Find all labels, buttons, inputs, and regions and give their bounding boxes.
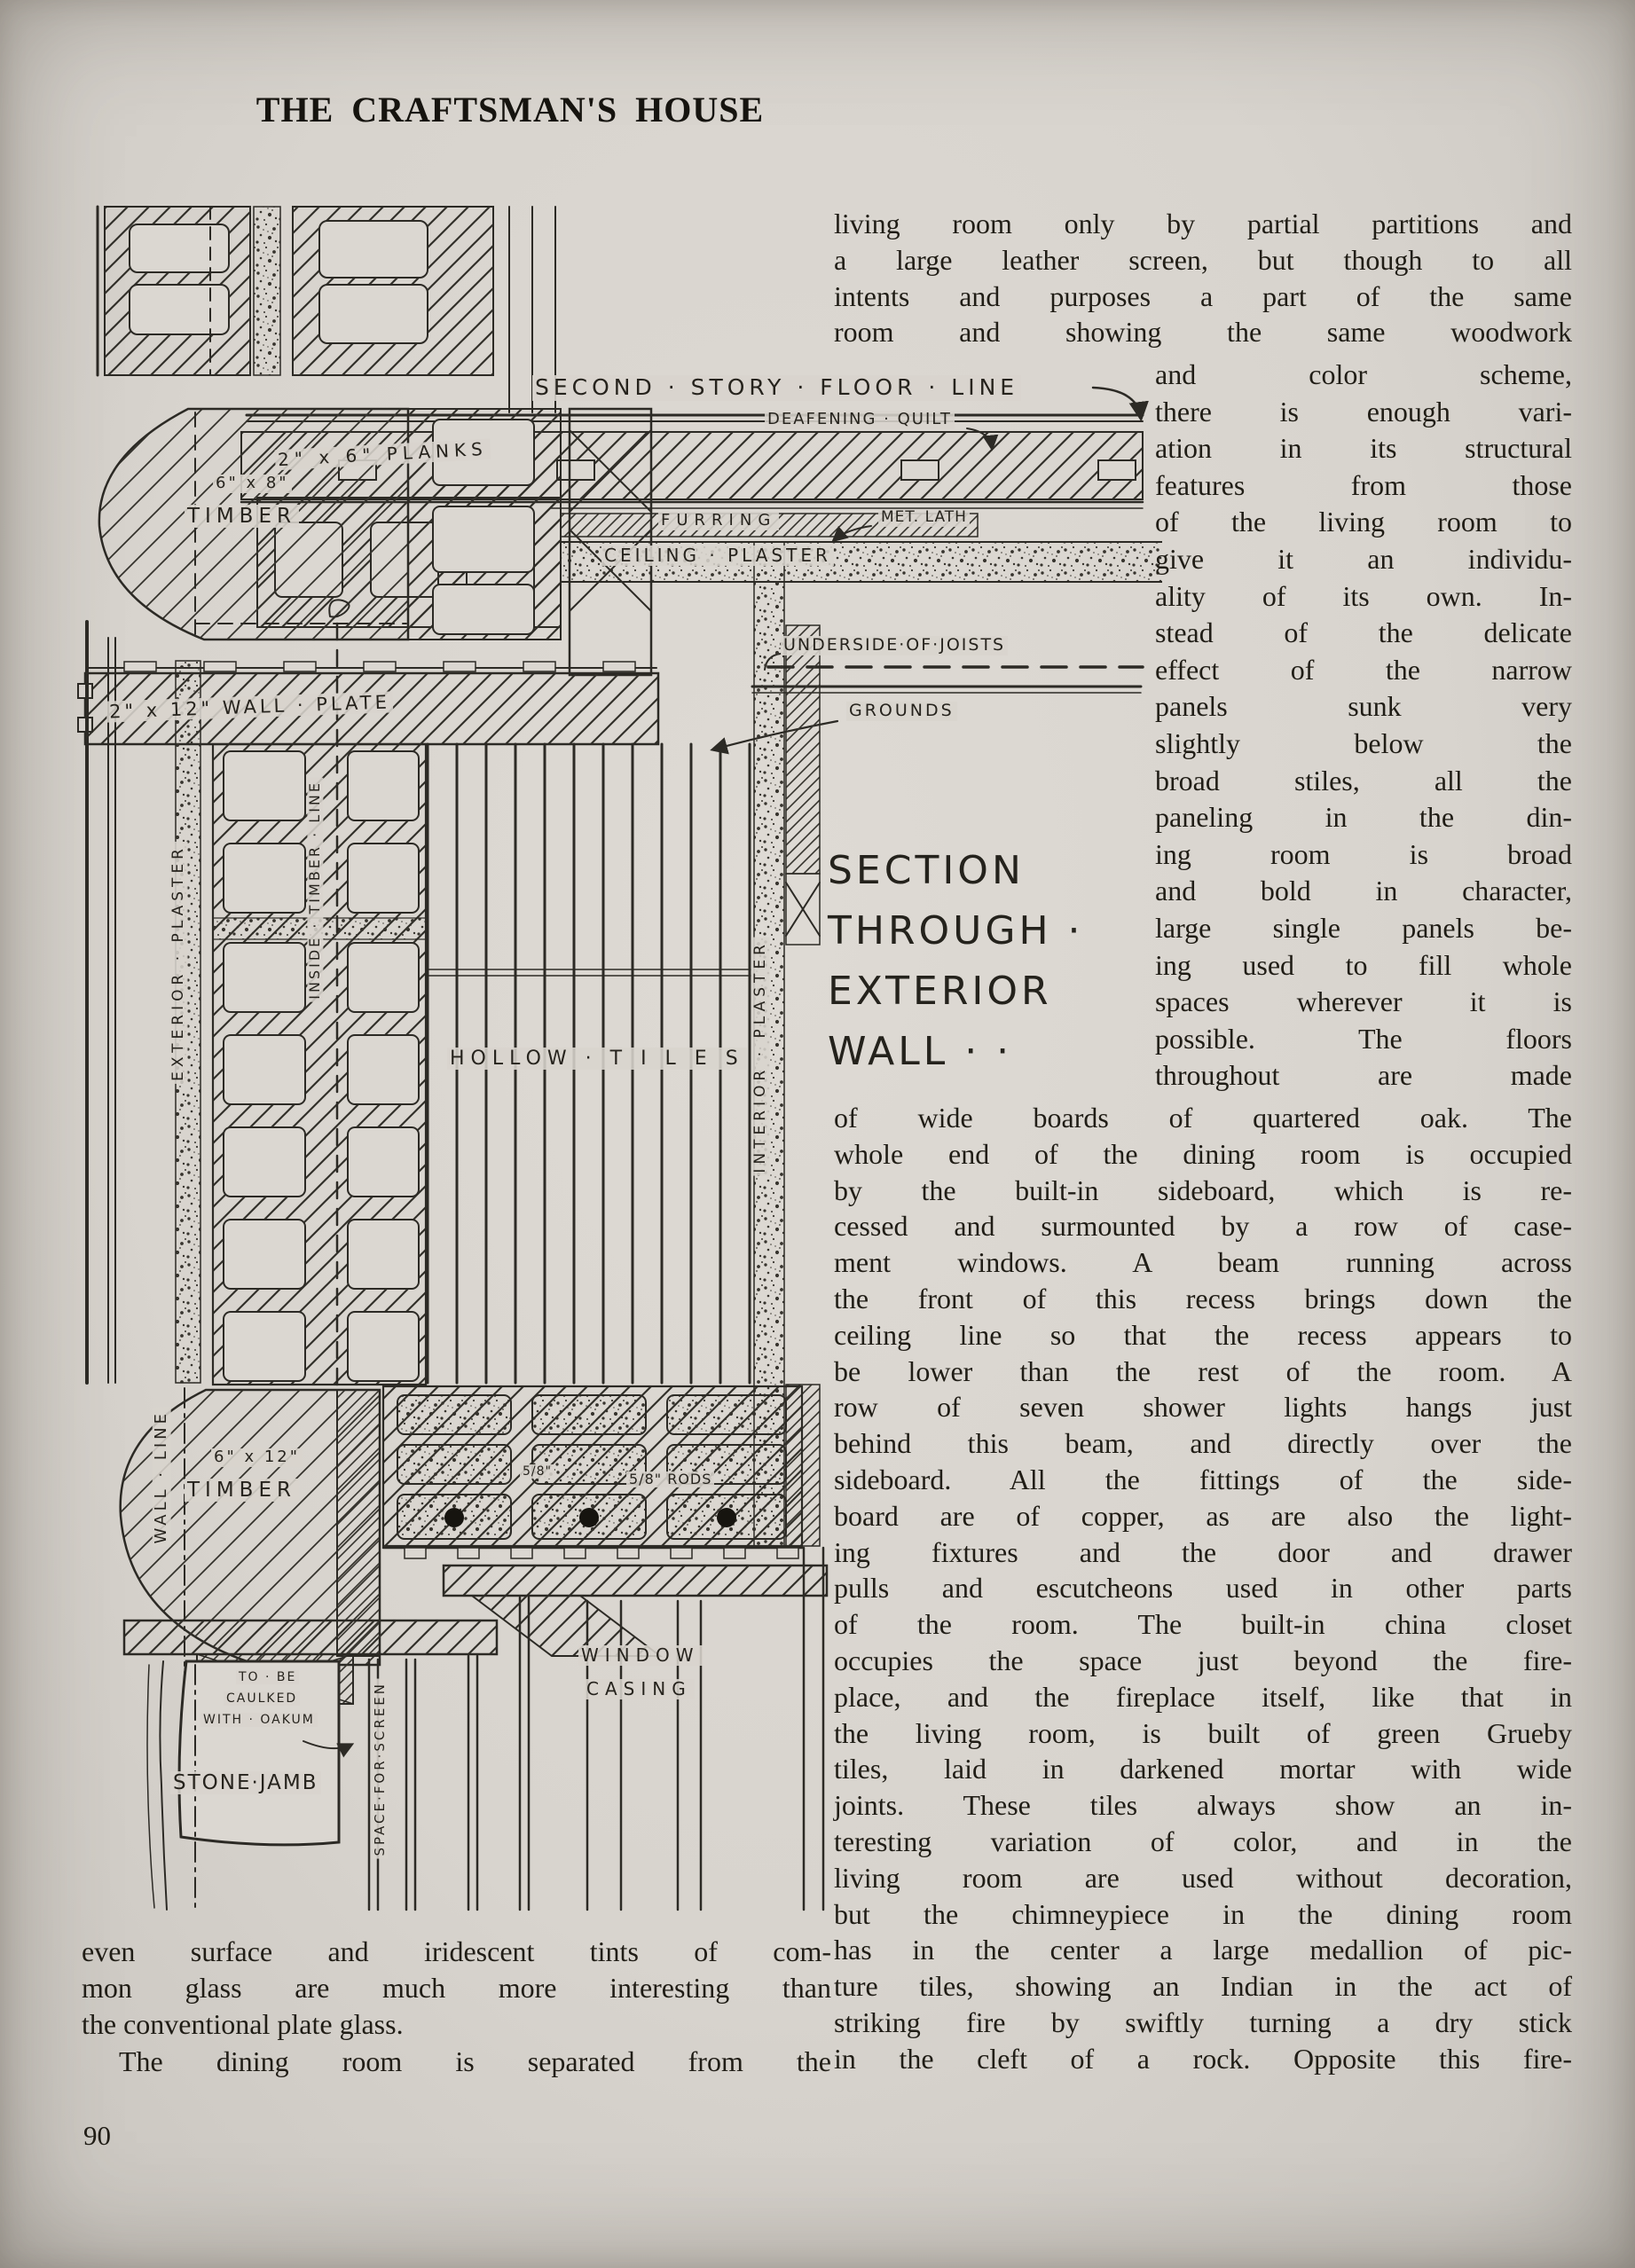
text-line: joints. These tiles always show an in- bbox=[834, 1787, 1572, 1824]
text-line: row of seven shower lights hangs just bbox=[834, 1389, 1572, 1425]
caption-line: EXTERIOR bbox=[828, 961, 1084, 1022]
text-line: intents and purposes a part of the same bbox=[834, 279, 1572, 315]
page-title: THE CRAFTSMAN'S HOUSE bbox=[0, 89, 1020, 130]
text-line: ture tiles, showing an Indian in the act… bbox=[834, 1968, 1572, 2005]
text-line: the living room, is built of green Grueb… bbox=[834, 1715, 1572, 1752]
text-line: be lower than the rest of the room. A bbox=[834, 1354, 1572, 1390]
text-line: but the chimneypiece in the dining room bbox=[834, 1896, 1572, 1933]
text-line: a large leather screen, but though to al… bbox=[834, 242, 1572, 279]
label-stone-jamb: STONE·JAMB bbox=[170, 1771, 321, 1794]
text-line: the front of this recess brings down the bbox=[834, 1281, 1572, 1317]
text-line: even surface and iridescent tints of com… bbox=[82, 1934, 831, 1970]
text-line: ceiling line so that the recess appears … bbox=[834, 1317, 1572, 1354]
text-line: living room are used without decoration, bbox=[834, 1860, 1572, 1896]
text-line: ing room is broad bbox=[1155, 836, 1572, 874]
scanned-page: THE CRAFTSMAN'S HOUSE bbox=[0, 0, 1635, 2268]
text-line: occupies the space just beyond the fire- bbox=[834, 1643, 1572, 1679]
label-caulked-line1: TO · BE bbox=[236, 1670, 299, 1684]
label-timber-6x8-size: 6" x 8" bbox=[213, 475, 292, 493]
label-caulked-line3: WITH · OAKUM bbox=[200, 1713, 318, 1727]
right-column-top: living room only by partial partitions a… bbox=[834, 206, 1572, 350]
text-line: cessed and surmounted by a row of case- bbox=[834, 1208, 1572, 1244]
caption-line: THROUGH · bbox=[828, 901, 1084, 961]
text-line: give it an individu- bbox=[1155, 541, 1572, 578]
label-window-casing-line2: CASING bbox=[584, 1679, 695, 1699]
text-line: of the living room to bbox=[1155, 504, 1572, 541]
label-interior-plaster: INTERIOR · PLASTER bbox=[752, 938, 770, 1176]
text-line: ing fixtures and the door and drawer bbox=[834, 1534, 1572, 1571]
text-line: teresting variation of color, and in the bbox=[834, 1824, 1572, 1860]
text-line: striking fire by swiftly turning a dry s… bbox=[834, 2005, 1572, 2041]
right-column-wide: of wide boards of quartered oak. Thewhol… bbox=[834, 1100, 1572, 2077]
right-column-narrow: and color scheme,there is enough vari-at… bbox=[1155, 357, 1572, 1095]
text-line: and bold in character, bbox=[1155, 873, 1572, 910]
text-line: and color scheme, bbox=[1155, 357, 1572, 394]
text-line: has in the center a large medallion of p… bbox=[834, 1932, 1572, 1968]
text-line: spaces wherever it is bbox=[1155, 984, 1572, 1021]
text-line: mon glass are much more interesting than bbox=[82, 1970, 831, 2006]
text-line: room and showing the same woodwork bbox=[834, 314, 1572, 350]
label-window-casing-line1: WINDOW bbox=[578, 1645, 703, 1666]
text-line: The dining room is separated from the bbox=[82, 2044, 831, 2080]
text-line: ment windows. A beam running across bbox=[834, 1244, 1572, 1281]
text-line: paneling in the din- bbox=[1155, 799, 1572, 836]
label-rod-size: 5/8" bbox=[520, 1464, 554, 1479]
text-line: there is enough vari- bbox=[1155, 394, 1572, 431]
label-hollow-tiles: HOLLOW · T I L E S bbox=[447, 1048, 747, 1070]
label-timber-6x12: TIMBER bbox=[185, 1479, 299, 1502]
caption-line: WALL · · bbox=[828, 1022, 1084, 1082]
text-line: features from those bbox=[1155, 467, 1572, 505]
text-line: panels sunk very bbox=[1155, 688, 1572, 726]
text-line: stead of the delicate bbox=[1155, 615, 1572, 652]
text-line: ation in its structural bbox=[1155, 430, 1572, 467]
page-number: 90 bbox=[83, 2120, 111, 2152]
label-exterior-plaster: EXTERIOR · PLASTER bbox=[170, 842, 188, 1084]
label-wall-line: WALL · LINE bbox=[153, 1408, 171, 1547]
text-line: broad stiles, all the bbox=[1155, 763, 1572, 800]
label-met-lath: MET. LATH bbox=[878, 509, 970, 527]
text-line: ing used to fill whole bbox=[1155, 947, 1572, 985]
text-line: pulls and escutcheons used in other part… bbox=[834, 1570, 1572, 1606]
label-inside-timber-line: INSIDE · TIMBER · LINE bbox=[307, 778, 323, 1002]
label-space-for-screen: SPACE·FOR·SCREEN bbox=[373, 1679, 388, 1859]
bottom-left-column: even surface and iridescent tints of com… bbox=[82, 1934, 831, 2080]
text-line: effect of the narrow bbox=[1155, 652, 1572, 689]
label-underside-of-joists: UNDERSIDE·OF·JOISTS bbox=[781, 636, 1008, 655]
label-second-story-floor-line: SECOND · STORY · FLOOR · LINE bbox=[532, 375, 1021, 401]
text-line: whole end of the dining room is occupied bbox=[834, 1136, 1572, 1173]
text-line: large single panels be- bbox=[1155, 910, 1572, 947]
text-line: living room only by partial partitions a… bbox=[834, 206, 1572, 242]
label-grounds: GROUNDS bbox=[846, 702, 957, 721]
text-line: sideboard. All the fittings of the side- bbox=[834, 1462, 1572, 1498]
label-timber-6x12-size: 6" x 12" bbox=[211, 1448, 303, 1467]
text-line: by the built-in sideboard, which is re- bbox=[834, 1173, 1572, 1209]
text-line: of wide boards of quartered oak. The bbox=[834, 1100, 1572, 1136]
label-timber-6x8: TIMBER bbox=[185, 505, 299, 528]
label-furring: FURRING bbox=[658, 512, 779, 530]
text-line: throughout are made bbox=[1155, 1057, 1572, 1095]
label-deafening-quilt: DEAFENING · QUILT bbox=[765, 411, 955, 429]
text-line: tiles, laid in darkened mortar with wide bbox=[834, 1751, 1572, 1787]
section-caption: SECTIONTHROUGH ·EXTERIORWALL · · bbox=[828, 841, 1084, 1082]
label-caulked-line2: CAULKED bbox=[224, 1691, 300, 1706]
text-line: in the cleft of a rock. Opposite this fi… bbox=[834, 2041, 1572, 2077]
text-line: place, and the fireplace itself, like th… bbox=[834, 1679, 1572, 1715]
text-line: board are of copper, as are also the lig… bbox=[834, 1498, 1572, 1534]
label-ceiling-plaster: CEILING · PLASTER bbox=[601, 545, 834, 566]
caption-line: SECTION bbox=[828, 841, 1084, 901]
text-line: behind this beam, and directly over the bbox=[834, 1425, 1572, 1462]
text-line: possible. The floors bbox=[1155, 1021, 1572, 1058]
text-line: ality of its own. In- bbox=[1155, 578, 1572, 616]
text-line: slightly below the bbox=[1155, 726, 1572, 763]
label-rods: 5/8" RODS bbox=[626, 1471, 714, 1487]
text-line: the conventional plate glass. bbox=[82, 2006, 831, 2043]
text-line: of the room. The built-in china closet bbox=[834, 1606, 1572, 1643]
